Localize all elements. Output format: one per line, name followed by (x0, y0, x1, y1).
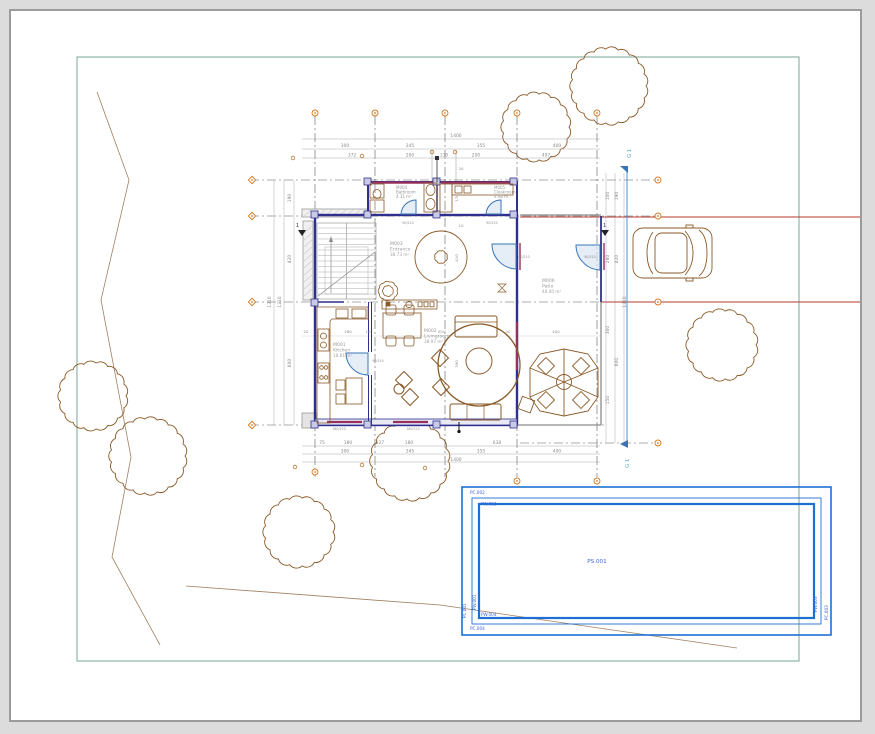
svg-text:190: 190 (287, 194, 293, 203)
svg-text:38.97 m²: 38.97 m² (424, 339, 443, 344)
svg-text:345: 345 (406, 449, 415, 455)
svg-text:PC.003: PC.003 (824, 605, 829, 620)
svg-text:1310: 1310 (267, 296, 273, 307)
svg-text:180/120: 180/120 (406, 427, 419, 431)
svg-text:90/210: 90/210 (402, 221, 413, 225)
svg-text:1210: 1210 (277, 296, 283, 307)
svg-text:600: 600 (614, 358, 620, 367)
svg-text:90/210: 90/210 (486, 221, 497, 225)
svg-text:300: 300 (341, 449, 350, 455)
svg-text:600: 600 (287, 359, 293, 368)
svg-text:420: 420 (614, 255, 620, 264)
svg-text:390: 390 (454, 360, 459, 368)
svg-text:190: 190 (614, 192, 620, 201)
svg-text:PW.003: PW.003 (813, 596, 818, 612)
svg-text:355: 355 (477, 143, 486, 149)
svg-text:420: 420 (287, 255, 293, 264)
svg-text:4.31 m²: 4.31 m² (396, 194, 412, 199)
svg-text:M001: M001 (333, 342, 346, 348)
svg-text:610: 610 (438, 329, 446, 334)
axis-label-top: G 1 (627, 149, 633, 158)
axis-label-bottom: G 1 (625, 459, 631, 468)
svg-text:PC.001: PC.001 (462, 603, 467, 618)
svg-text:PC.002: PC.002 (470, 490, 485, 495)
svg-text:200: 200 (472, 153, 481, 159)
svg-text:355: 355 (477, 449, 486, 455)
svg-text:1400: 1400 (450, 457, 461, 463)
svg-text:PW.004: PW.004 (481, 612, 497, 617)
svg-text:200: 200 (406, 153, 415, 159)
svg-text:127: 127 (376, 440, 385, 446)
svg-text:75: 75 (319, 440, 325, 446)
svg-text:M006: M006 (542, 278, 555, 284)
svg-text:1: 1 (603, 223, 606, 229)
svg-text:345: 345 (406, 143, 415, 149)
svg-text:1400: 1400 (450, 133, 461, 139)
svg-text:400: 400 (553, 449, 562, 455)
svg-text:1: 1 (296, 223, 299, 229)
svg-text:497: 497 (542, 153, 551, 159)
svg-text:400: 400 (553, 143, 562, 149)
svg-text:18.81 m²: 18.81 m² (333, 353, 352, 358)
svg-text:410: 410 (454, 254, 459, 262)
svg-text:PC.004: PC.004 (470, 626, 485, 631)
svg-text:1310: 1310 (622, 296, 628, 307)
svg-text:PW.001: PW.001 (472, 594, 477, 610)
svg-text:10: 10 (459, 223, 464, 228)
svg-text:280: 280 (344, 329, 352, 334)
svg-text:150: 150 (605, 396, 611, 405)
svg-text:400: 400 (552, 329, 560, 334)
svg-text:180/120: 180/120 (332, 427, 345, 431)
svg-text:130: 130 (440, 153, 449, 159)
svg-text:M003: M003 (390, 241, 403, 247)
svg-text:20: 20 (304, 329, 309, 334)
svg-text:280: 280 (605, 255, 611, 264)
svg-text:638: 638 (493, 440, 502, 446)
svg-text:M002: M002 (424, 328, 437, 334)
svg-text:PS.001: PS.001 (587, 559, 607, 565)
svg-text:4.98 m²: 4.98 m² (494, 194, 510, 199)
svg-text:10: 10 (366, 329, 371, 334)
svg-text:300: 300 (341, 143, 350, 149)
svg-text:180: 180 (344, 440, 353, 446)
site-plan-canvas: M001 Kitchen 18.81 m² M002 Livingroom 38… (0, 0, 875, 734)
svg-text:38.73 m²: 38.73 m² (390, 252, 409, 257)
cad-viewport: M001 Kitchen 18.81 m² M002 Livingroom 38… (0, 0, 875, 734)
svg-text:90/210: 90/210 (584, 255, 595, 259)
svg-text:90/210: 90/210 (372, 359, 383, 363)
svg-text:PW.002: PW.002 (481, 502, 497, 507)
svg-text:180: 180 (405, 440, 414, 446)
svg-text:372: 372 (348, 153, 357, 159)
svg-text:100: 100 (605, 192, 611, 201)
svg-text:300: 300 (605, 326, 611, 335)
svg-text:20: 20 (459, 166, 464, 171)
svg-text:20: 20 (506, 329, 511, 334)
svg-text:48.40 m²: 48.40 m² (542, 289, 561, 294)
svg-text:90/210: 90/210 (518, 255, 529, 259)
svg-text:170: 170 (454, 194, 459, 202)
